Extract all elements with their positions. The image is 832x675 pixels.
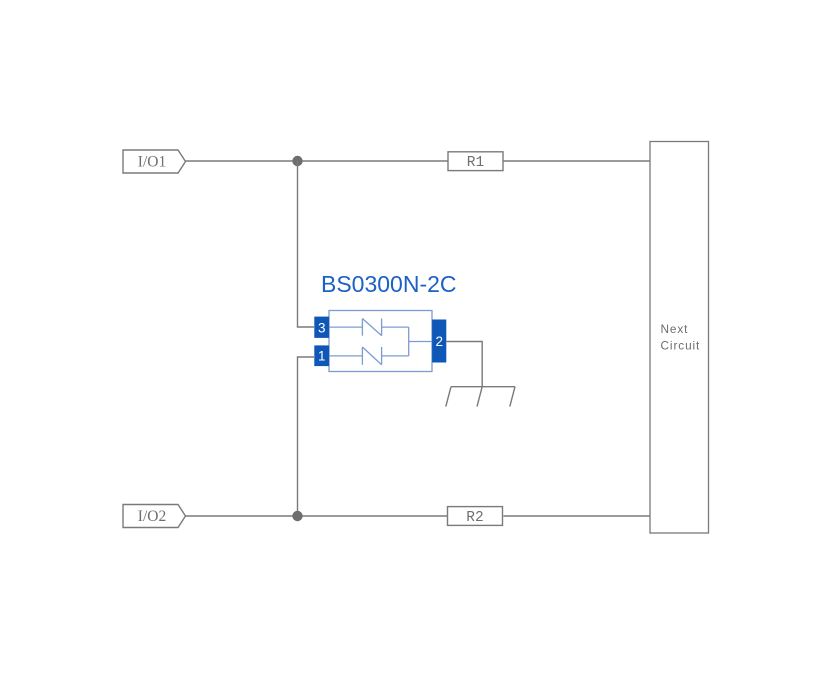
svg-text:R2: R2 — [466, 510, 483, 526]
svg-text:3: 3 — [318, 320, 326, 335]
svg-text:BS0300N-2C: BS0300N-2C — [321, 271, 457, 297]
svg-text:I/O2: I/O2 — [138, 508, 166, 525]
svg-text:1: 1 — [318, 349, 326, 364]
svg-text:R1: R1 — [467, 155, 484, 171]
svg-text:2: 2 — [435, 334, 443, 349]
svg-text:I/O1: I/O1 — [138, 154, 166, 171]
svg-text:Next: Next — [661, 322, 689, 336]
svg-text:Circuit: Circuit — [661, 339, 701, 353]
